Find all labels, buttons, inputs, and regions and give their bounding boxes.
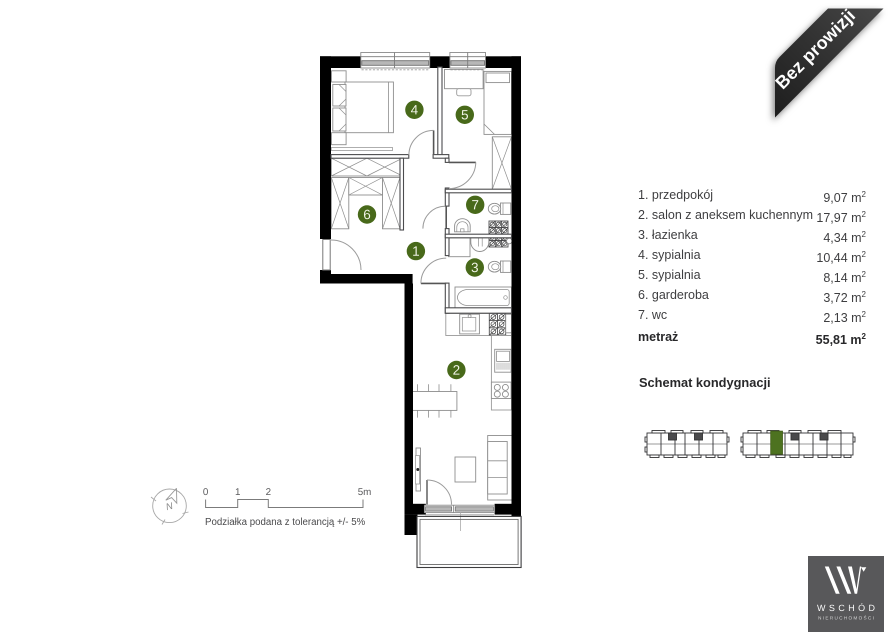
svg-text:5m: 5m: [358, 487, 372, 498]
svg-text:0: 0: [203, 487, 209, 498]
svg-text:N: N: [165, 501, 174, 513]
svg-text:2: 2: [266, 487, 271, 498]
svg-text:Bez prowizji: Bez prowizji: [771, 5, 859, 93]
svg-text:1: 1: [235, 487, 240, 498]
